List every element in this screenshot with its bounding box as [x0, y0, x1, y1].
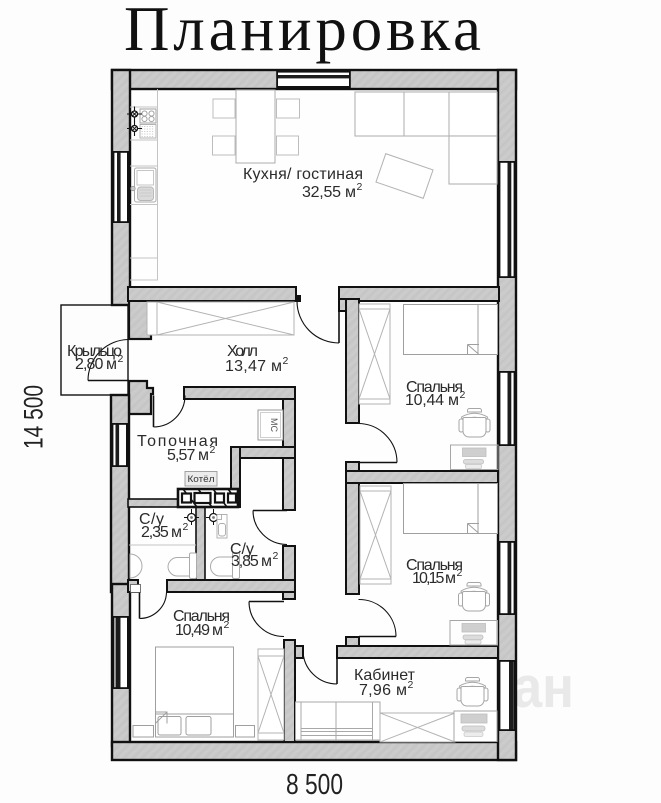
svg-text:2: 2 — [224, 619, 230, 631]
svg-text:10,44 м: 10,44 м — [405, 392, 459, 409]
svg-text:2: 2 — [457, 567, 463, 579]
svg-text:2: 2 — [460, 389, 466, 401]
svg-text:2: 2 — [357, 181, 363, 193]
svg-text:2,35 м: 2,35 м — [141, 524, 182, 541]
svg-text:14 500: 14 500 — [19, 385, 49, 449]
svg-text:3,85 м: 3,85 м — [231, 553, 272, 570]
svg-text:Котёл: Котёл — [188, 474, 215, 484]
svg-text:8 500: 8 500 — [286, 769, 343, 801]
svg-text:5,57 м: 5,57 м — [167, 447, 209, 464]
svg-text:2: 2 — [273, 550, 279, 562]
svg-text:Кухня/ гостиная: Кухня/ гостиная — [243, 166, 363, 183]
svg-text:МС: МС — [269, 418, 279, 433]
svg-text:13,47 м: 13,47 м — [225, 358, 282, 375]
svg-text:32,55 м: 32,55 м — [302, 184, 356, 201]
svg-text:2: 2 — [210, 444, 216, 456]
svg-text:2: 2 — [408, 679, 414, 691]
svg-text:10,15 м: 10,15 м — [412, 570, 456, 587]
svg-text:2: 2 — [183, 521, 189, 533]
svg-text:2: 2 — [118, 353, 124, 365]
svg-text:2: 2 — [283, 355, 289, 367]
svg-text:Планировка: Планировка — [124, 0, 481, 64]
svg-text:7,96 м: 7,96 м — [359, 682, 407, 699]
svg-text:10,49 м: 10,49 м — [175, 622, 223, 639]
svg-text:2,80 м: 2,80 м — [75, 356, 117, 373]
